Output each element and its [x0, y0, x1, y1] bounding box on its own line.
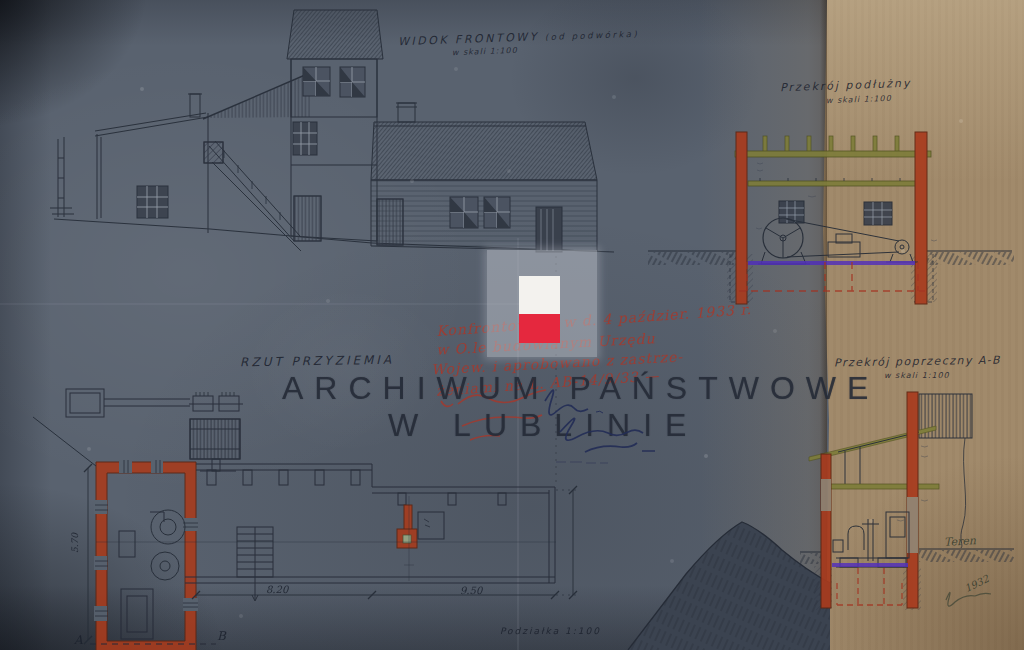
archival-blueprint-scan: WIDOK FRONTOWY (od podwórka) w skali 1:1… [0, 0, 1024, 650]
flag-patch-red [519, 314, 560, 343]
ink-signature [545, 390, 655, 463]
flag-patch-white [519, 276, 560, 314]
paper-speckles [0, 0, 2, 2]
